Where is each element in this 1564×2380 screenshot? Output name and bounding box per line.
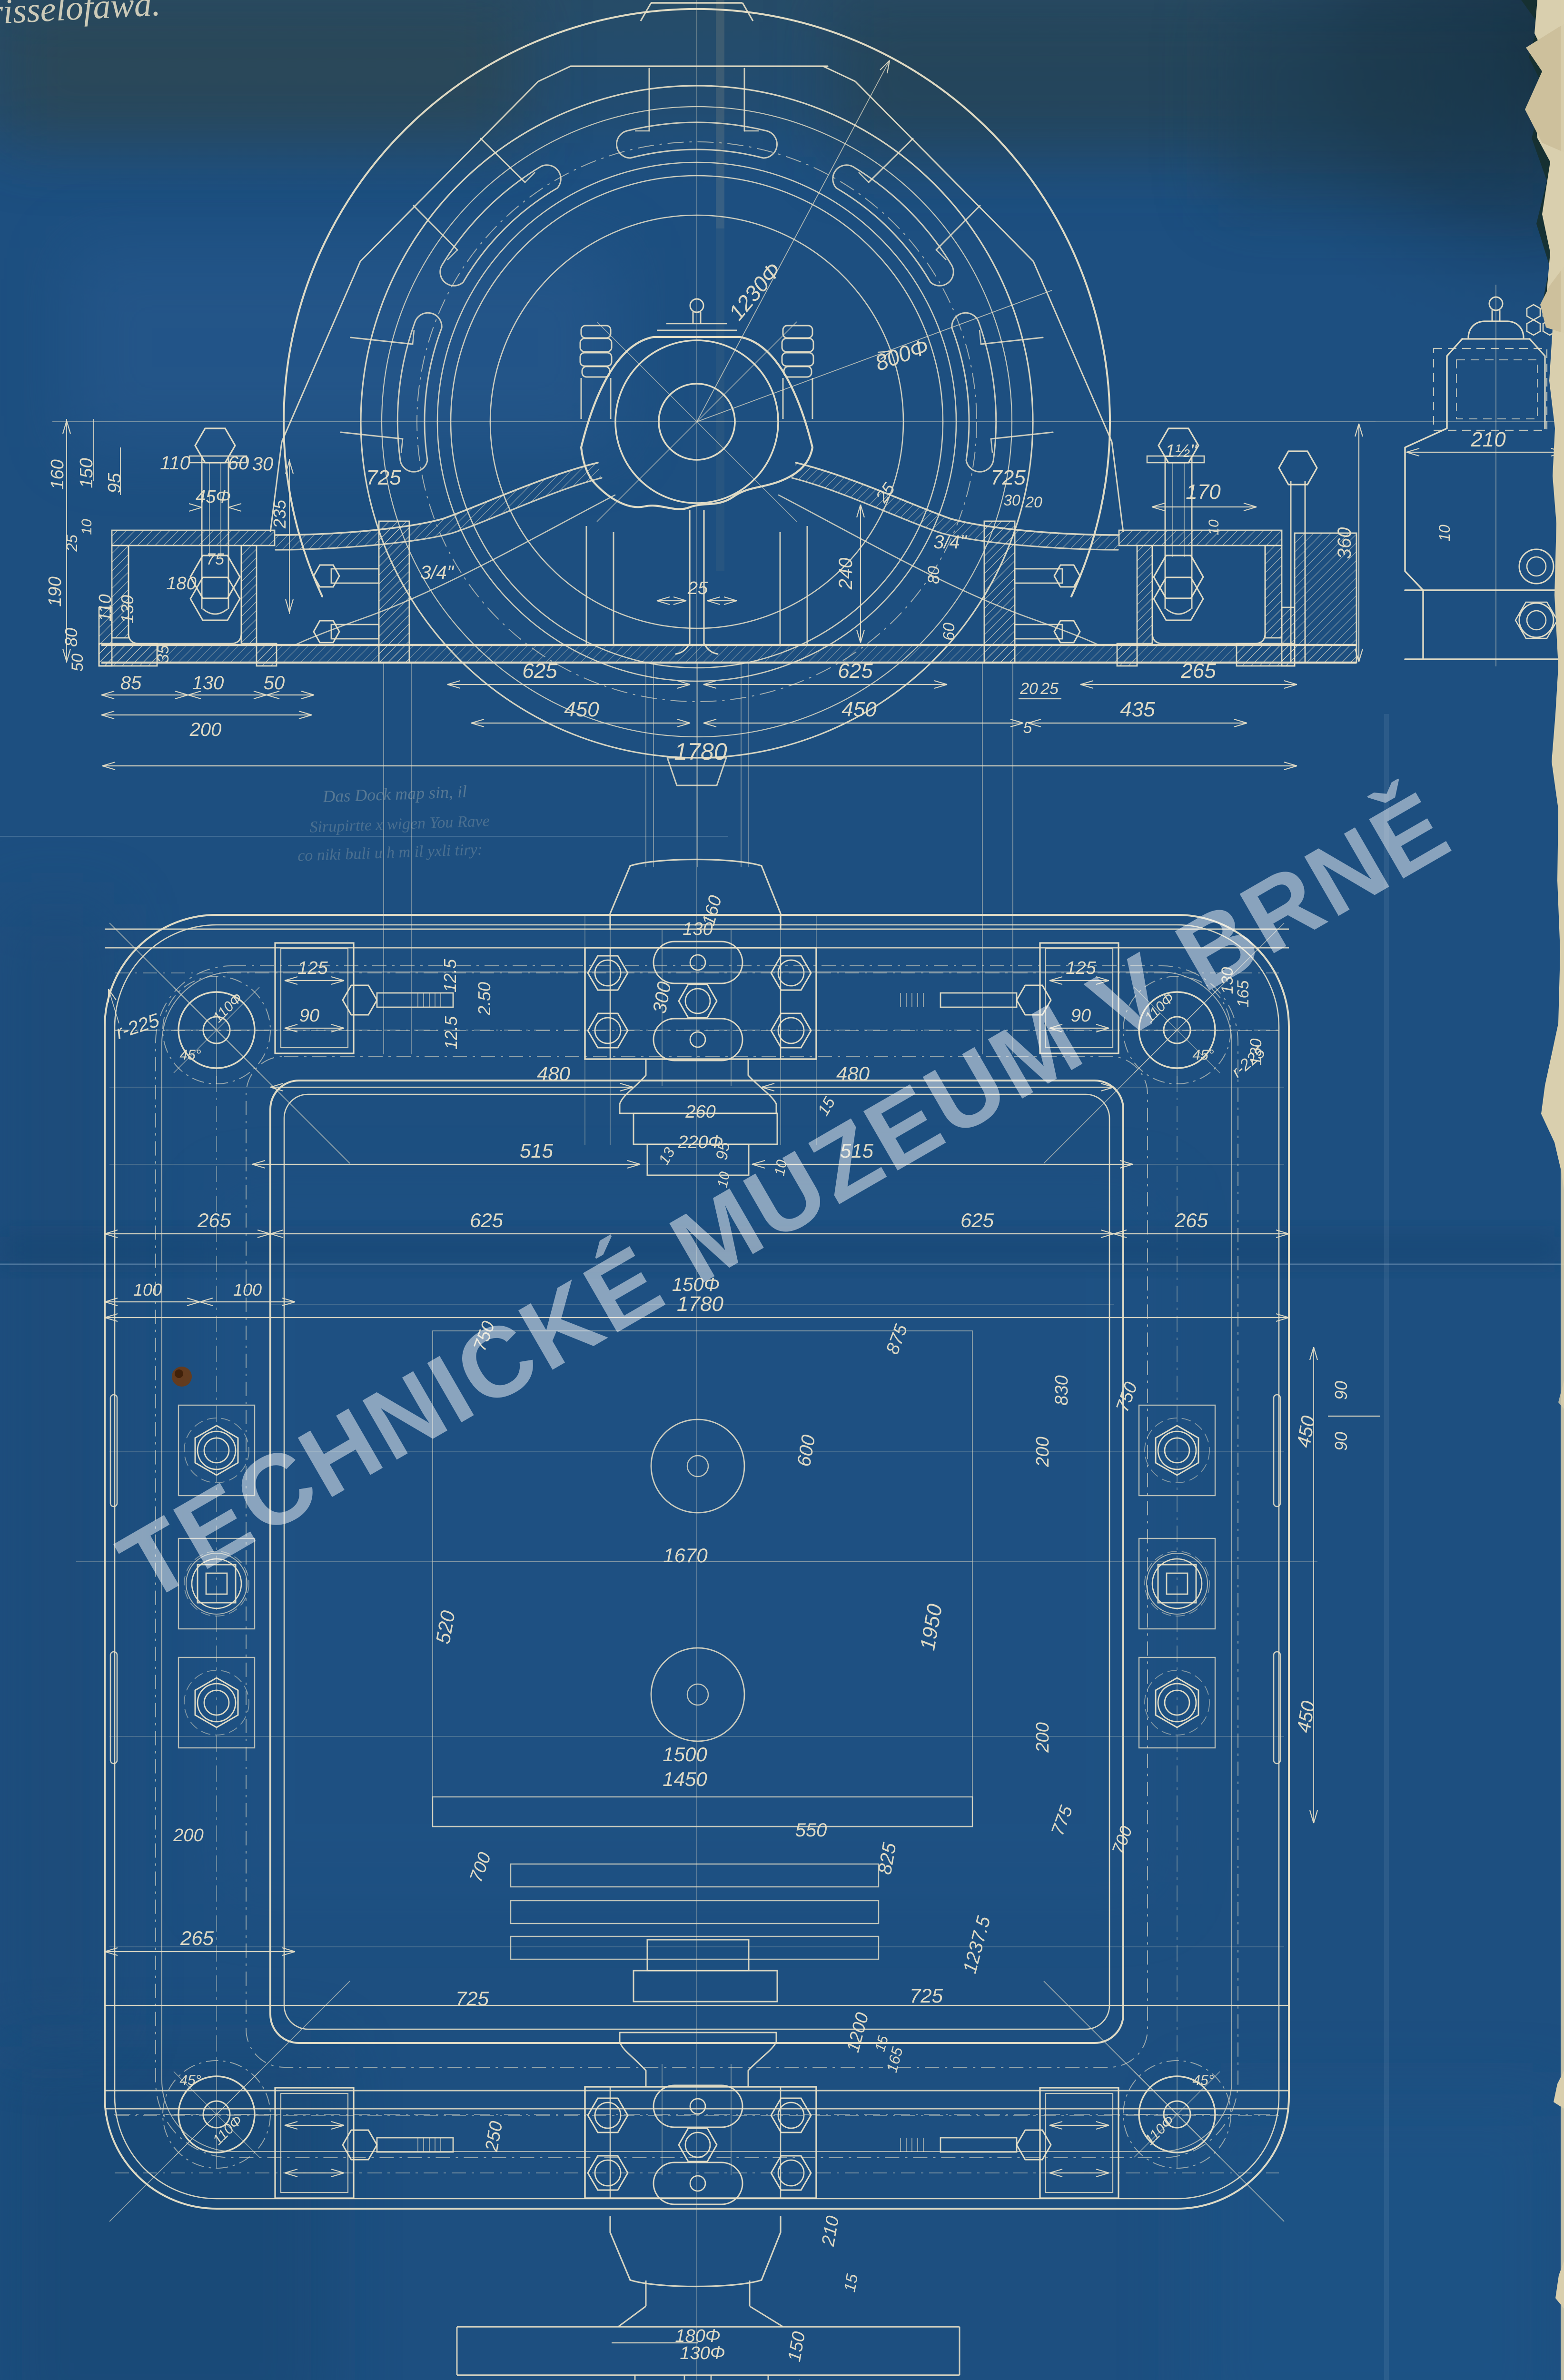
svg-text:3/4": 3/4" [933,532,968,553]
svg-text:1450: 1450 [663,1768,707,1790]
svg-text:50: 50 [264,673,285,694]
svg-text:20: 20 [1025,494,1042,511]
svg-text:200: 200 [1033,1722,1053,1753]
svg-text:725: 725 [990,466,1026,489]
svg-text:85: 85 [120,673,142,694]
svg-text:160: 160 [48,459,68,489]
svg-text:1670: 1670 [663,1544,708,1567]
svg-text:240: 240 [835,558,856,590]
svg-text:130: 130 [118,595,137,624]
svg-text:515: 515 [520,1140,554,1162]
svg-text:80: 80 [925,566,943,584]
svg-text:45Φ: 45Φ [196,487,231,507]
svg-text:45°: 45° [179,2073,201,2088]
svg-text:265: 265 [1180,659,1216,683]
svg-text:625: 625 [838,659,873,683]
svg-text:130: 130 [192,673,224,694]
svg-text:10: 10 [79,519,95,535]
svg-text:725: 725 [910,1984,943,2007]
svg-text:170: 170 [1186,480,1221,504]
svg-text:110: 110 [95,594,115,621]
svg-text:100: 100 [233,1280,262,1299]
svg-text:480: 480 [537,1062,571,1085]
svg-text:450: 450 [564,698,599,721]
svg-text:25: 25 [687,578,708,598]
svg-text:12.5: 12.5 [441,1016,461,1050]
svg-text:25: 25 [1040,680,1059,698]
svg-text:200: 200 [173,1825,203,1845]
svg-text:30: 30 [1003,492,1020,509]
svg-text:130Φ: 130Φ [680,2343,725,2363]
svg-text:10: 10 [1206,519,1222,535]
svg-text:50: 50 [69,654,87,672]
svg-text:1780: 1780 [674,738,727,765]
svg-text:200: 200 [1033,1437,1053,1467]
svg-text:10: 10 [1436,525,1453,542]
svg-text:30: 30 [252,454,274,475]
svg-text:35: 35 [154,645,172,663]
svg-text:450: 450 [841,698,877,721]
svg-text:12.5: 12.5 [440,959,460,992]
svg-text:45°: 45° [1192,2073,1214,2088]
svg-text:130: 130 [1247,1039,1265,1066]
svg-text:550: 550 [795,1820,827,1841]
svg-text:265: 265 [197,1209,231,1231]
svg-text:725: 725 [366,466,401,489]
svg-text:20: 20 [1020,680,1038,698]
svg-text:265: 265 [180,1927,214,1949]
svg-text:190: 190 [45,576,65,606]
svg-text:75: 75 [206,550,224,568]
svg-text:100: 100 [133,1280,162,1299]
svg-text:725: 725 [455,1987,489,2010]
svg-text:5: 5 [1023,719,1032,737]
svg-text:95: 95 [713,1140,733,1161]
svg-text:1½": 1½" [1165,441,1198,461]
svg-text:90: 90 [1331,1432,1351,1451]
svg-text:125: 125 [297,958,328,978]
svg-text:110: 110 [160,453,190,474]
svg-text:235: 235 [270,499,289,529]
svg-text:15: 15 [841,2272,861,2293]
svg-text:480: 480 [836,1062,870,1085]
svg-text:3/4": 3/4" [420,562,455,583]
svg-text:90: 90 [1331,1381,1351,1400]
svg-text:80: 80 [61,628,81,647]
svg-text:625: 625 [960,1209,994,1231]
svg-text:1500: 1500 [663,1743,707,1765]
svg-text:625: 625 [522,659,557,683]
svg-text:60: 60 [228,453,249,474]
svg-text:2.50: 2.50 [475,982,494,1016]
svg-text:45°: 45° [179,1047,201,1063]
svg-text:25: 25 [63,535,80,552]
svg-text:90: 90 [299,1006,319,1026]
svg-text:265: 265 [1174,1209,1208,1231]
svg-text:45°: 45° [1192,1047,1214,1063]
svg-text:180: 180 [166,574,196,594]
svg-text:150: 150 [77,458,97,488]
svg-text:210: 210 [1470,428,1506,451]
svg-text:260: 260 [685,1102,715,1122]
svg-text:95: 95 [105,473,125,493]
svg-text:830: 830 [1052,1375,1072,1405]
svg-text:625: 625 [470,1209,504,1231]
svg-text:130: 130 [683,919,713,939]
svg-text:435: 435 [1120,698,1155,721]
svg-text:200: 200 [189,719,222,740]
svg-text:60: 60 [940,623,958,641]
svg-text:360: 360 [1334,527,1355,559]
